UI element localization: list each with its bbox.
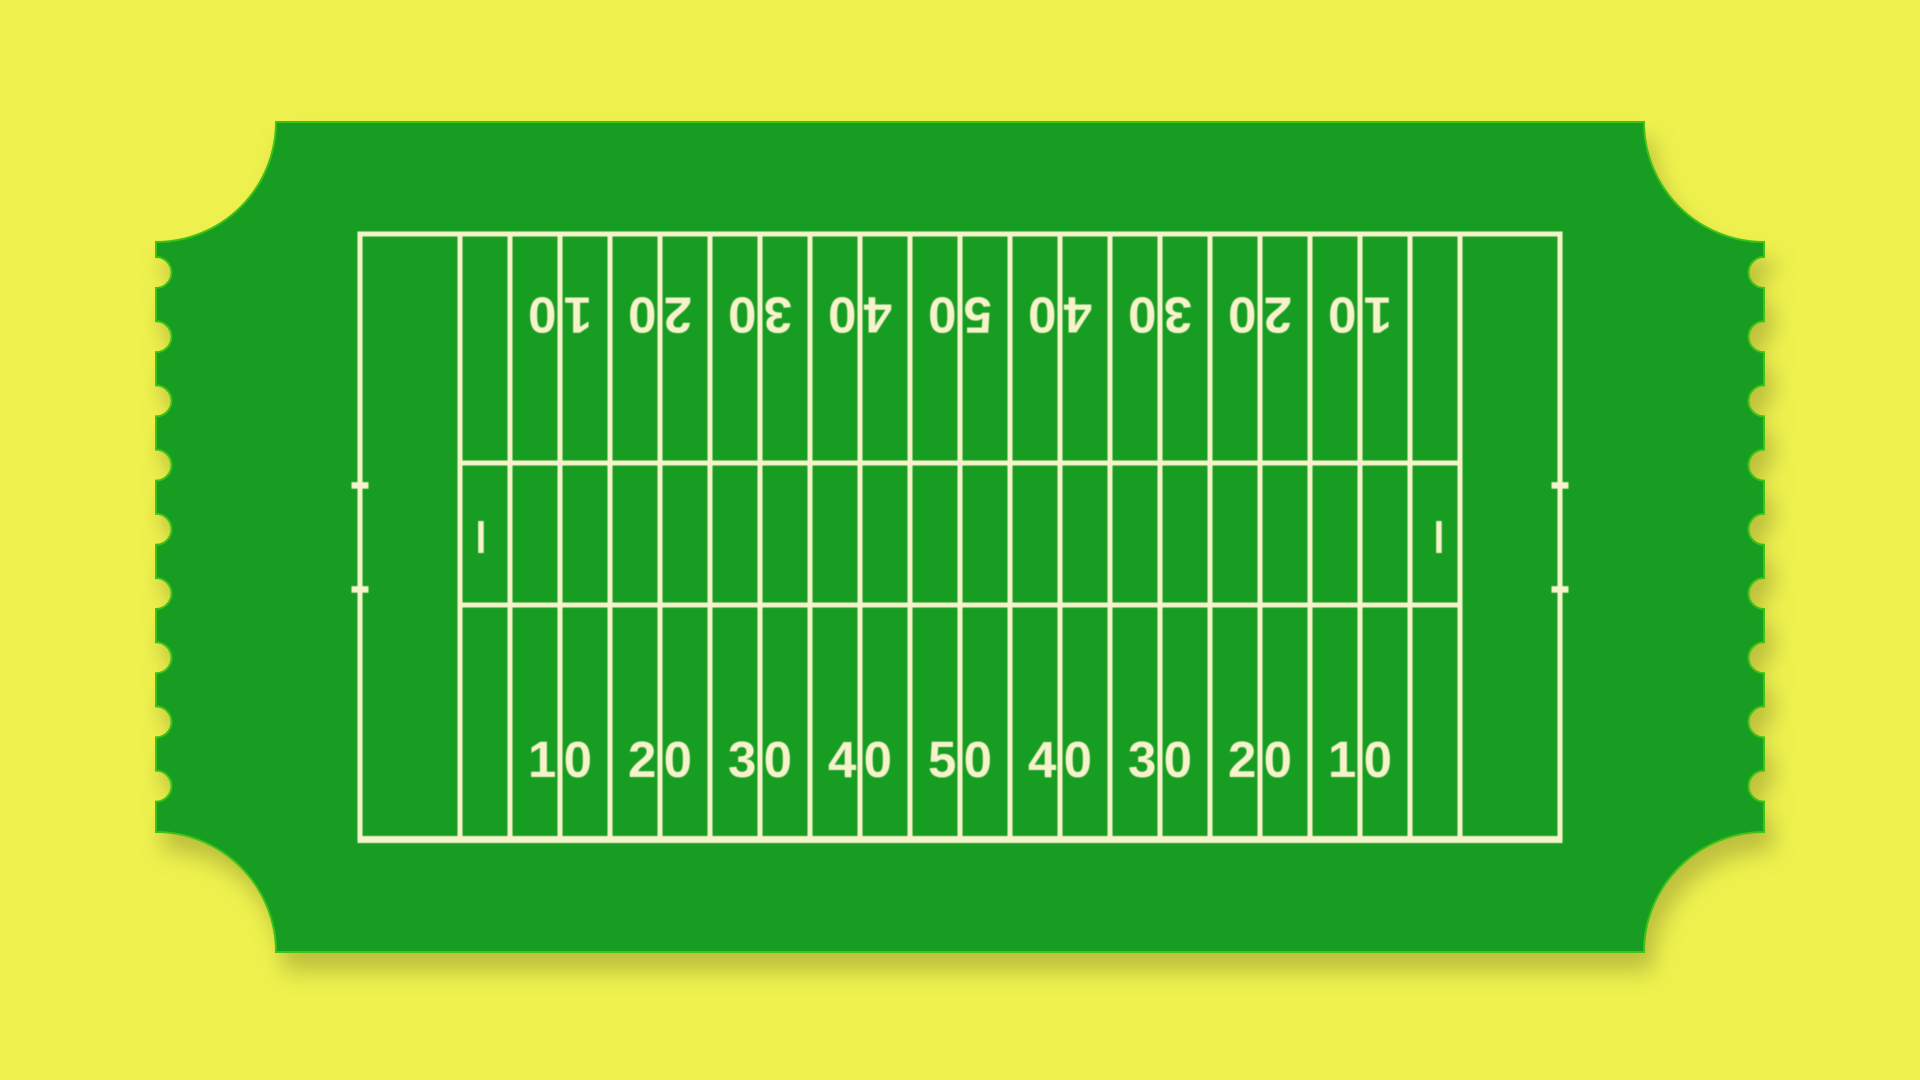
svg-text:0: 0 — [528, 286, 556, 343]
svg-text:0: 0 — [1264, 731, 1292, 788]
svg-text:2: 2 — [628, 731, 656, 788]
svg-text:0: 0 — [1128, 286, 1156, 343]
svg-text:1: 1 — [528, 731, 556, 788]
svg-text:5: 5 — [964, 286, 992, 343]
svg-text:0: 0 — [928, 286, 956, 343]
svg-text:1: 1 — [564, 286, 592, 343]
svg-text:0: 0 — [1328, 286, 1356, 343]
svg-text:3: 3 — [1164, 286, 1192, 343]
svg-text:1: 1 — [1328, 731, 1356, 788]
svg-text:1: 1 — [1364, 286, 1392, 343]
svg-text:4: 4 — [863, 286, 892, 343]
svg-text:3: 3 — [764, 286, 792, 343]
svg-text:0: 0 — [1228, 286, 1256, 343]
svg-text:0: 0 — [1028, 286, 1056, 343]
svg-text:0: 0 — [828, 286, 856, 343]
svg-text:2: 2 — [1264, 286, 1292, 343]
svg-text:4: 4 — [828, 731, 857, 788]
svg-text:0: 0 — [1364, 731, 1392, 788]
svg-text:0: 0 — [1064, 731, 1092, 788]
svg-text:0: 0 — [764, 731, 792, 788]
svg-text:3: 3 — [728, 731, 756, 788]
svg-text:0: 0 — [864, 731, 892, 788]
svg-text:2: 2 — [1228, 731, 1256, 788]
svg-text:0: 0 — [964, 731, 992, 788]
svg-text:0: 0 — [664, 731, 692, 788]
svg-text:0: 0 — [564, 731, 592, 788]
svg-text:5: 5 — [928, 731, 956, 788]
svg-text:2: 2 — [664, 286, 692, 343]
svg-text:0: 0 — [628, 286, 656, 343]
svg-text:0: 0 — [728, 286, 756, 343]
svg-text:0: 0 — [1164, 731, 1192, 788]
svg-text:3: 3 — [1128, 731, 1156, 788]
svg-text:4: 4 — [1063, 286, 1092, 343]
svg-text:4: 4 — [1028, 731, 1057, 788]
